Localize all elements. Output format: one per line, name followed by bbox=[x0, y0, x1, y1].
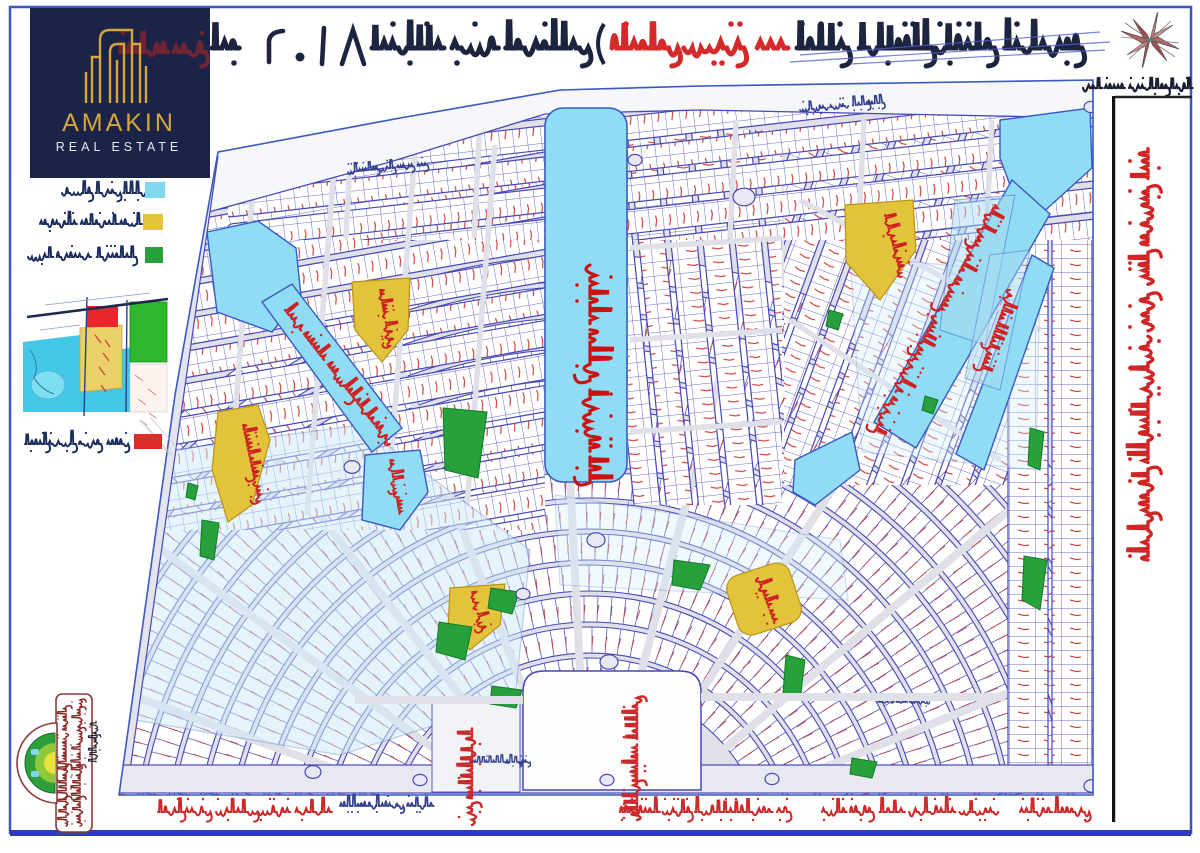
svg-text:REAL ESTATE: REAL ESTATE bbox=[56, 140, 182, 154]
svg-text:AMAKIN: AMAKIN bbox=[62, 109, 176, 137]
